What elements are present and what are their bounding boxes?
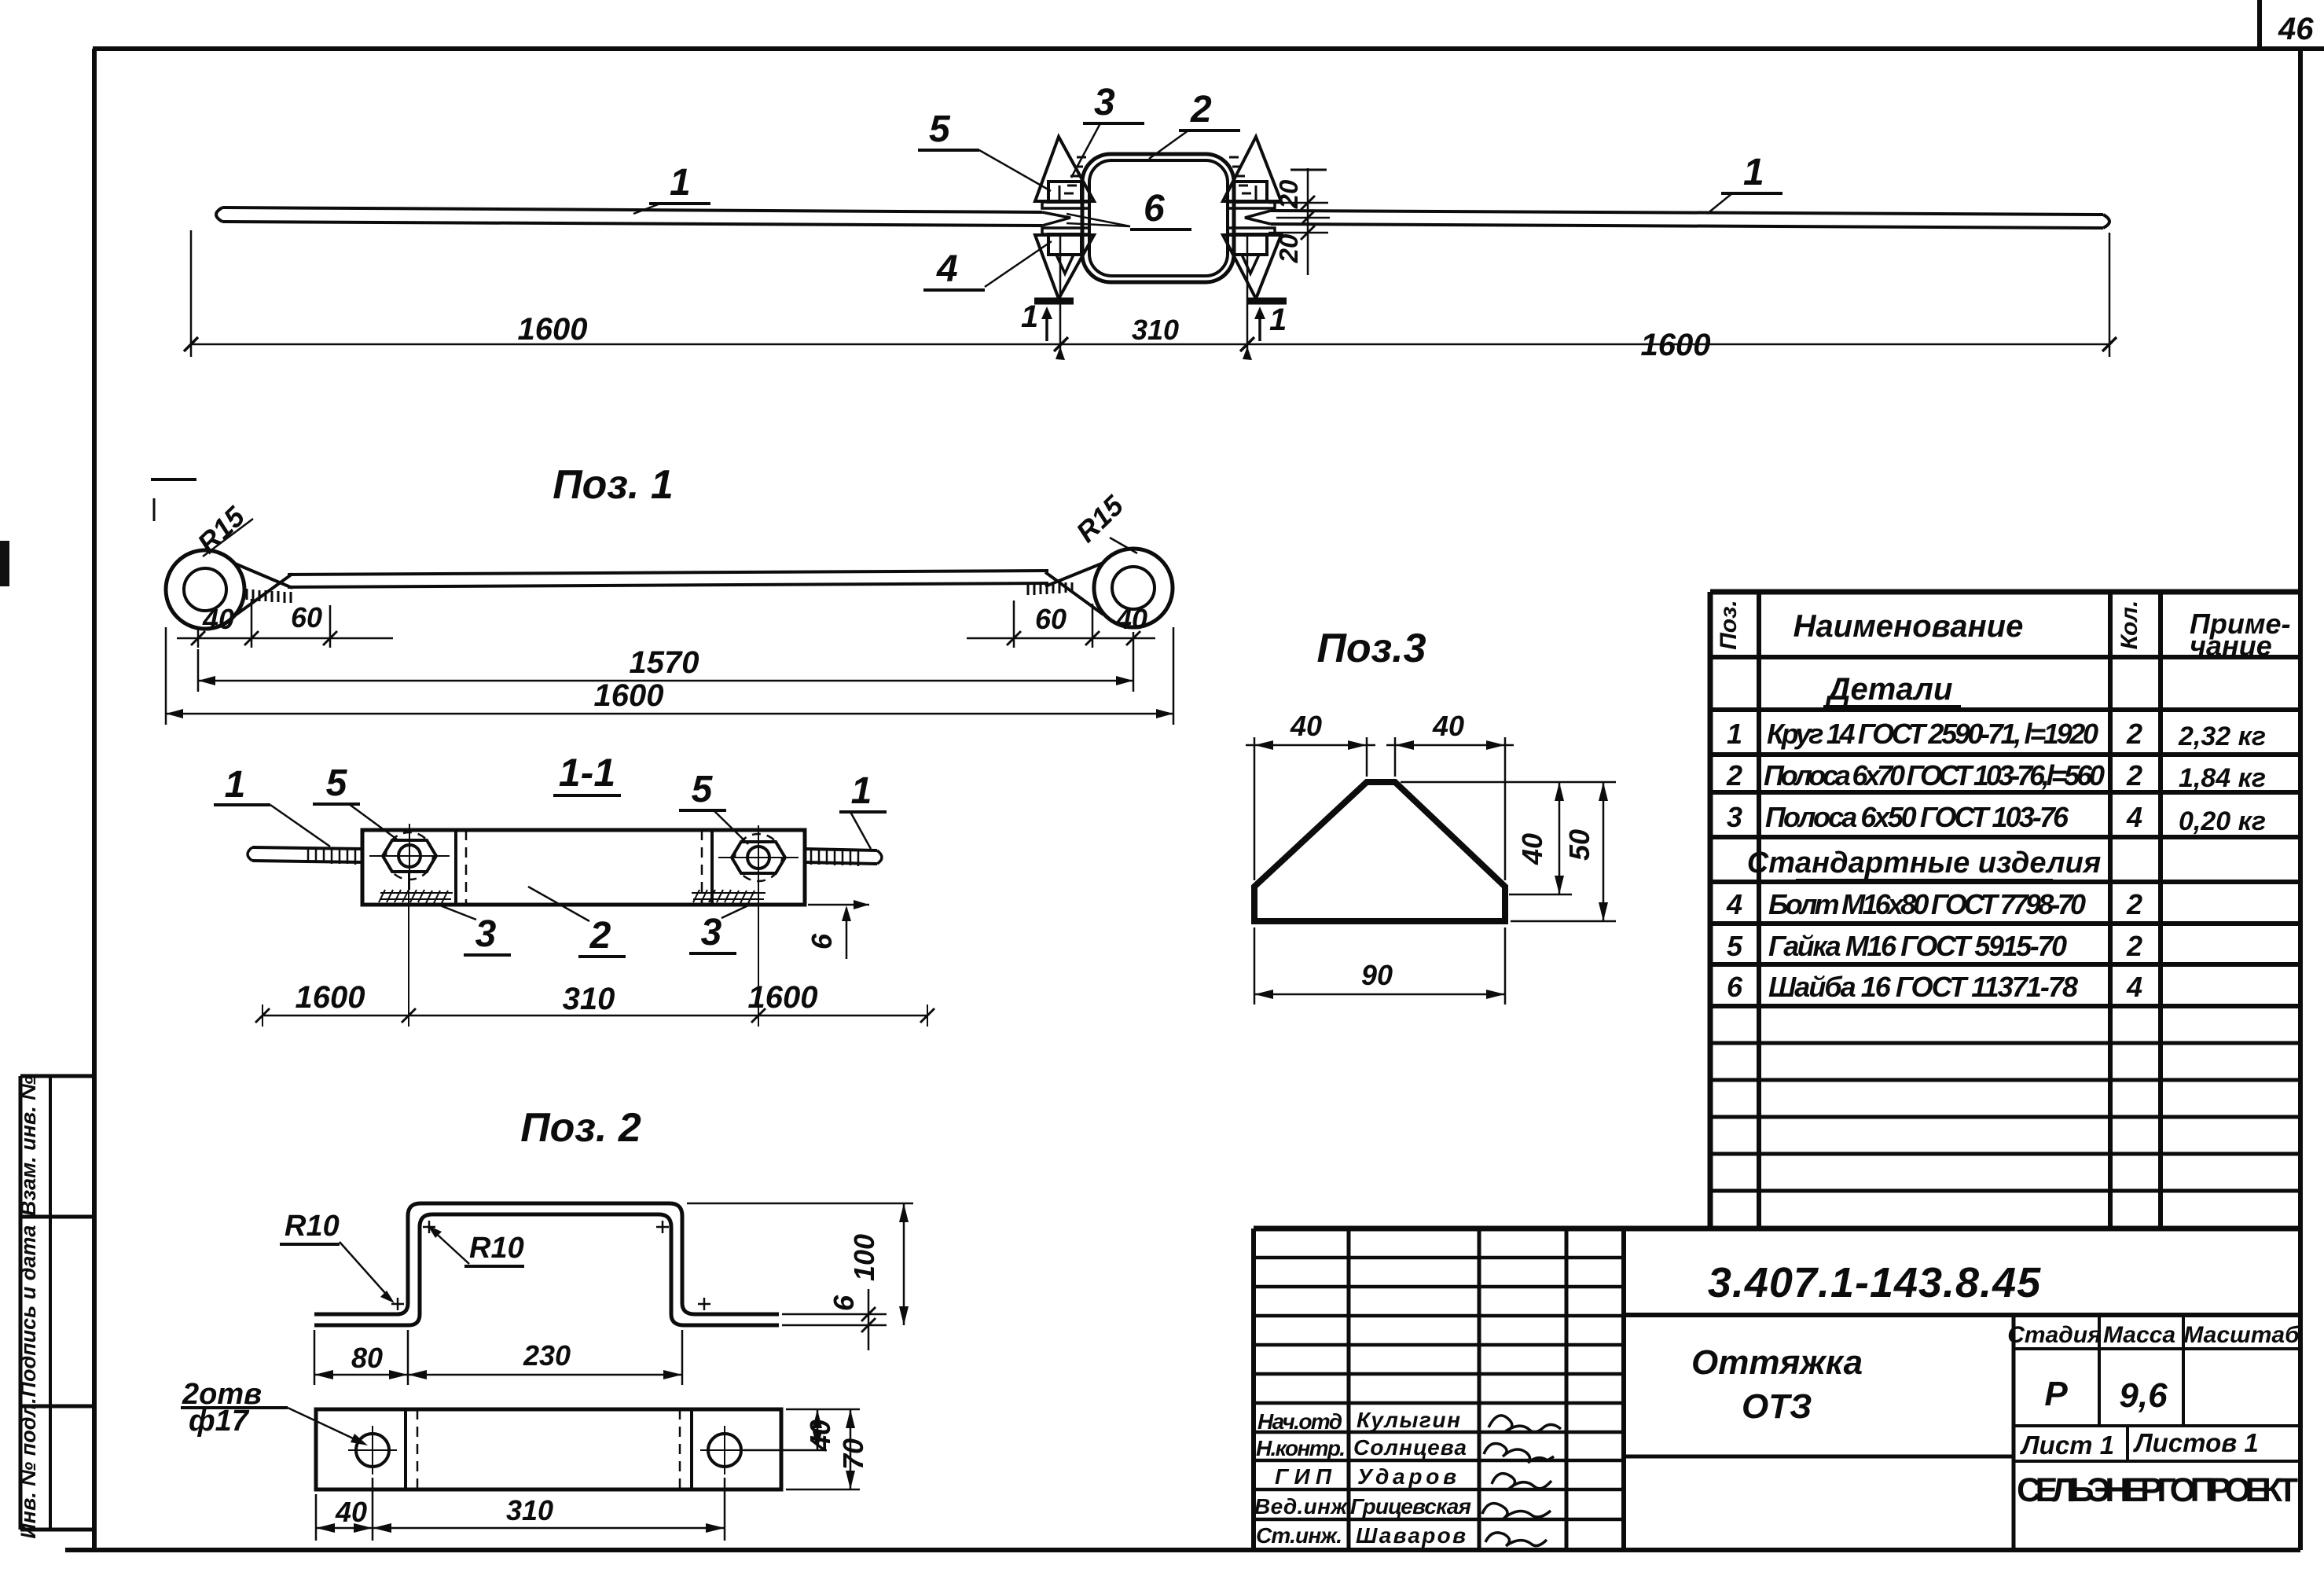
svg-text:2: 2 bbox=[1726, 759, 1742, 792]
svg-text:3: 3 bbox=[475, 913, 497, 955]
svg-text:Кол.: Кол. bbox=[2117, 601, 2142, 650]
svg-text:230: 230 bbox=[523, 1339, 571, 1372]
svg-text:100: 100 bbox=[848, 1234, 880, 1281]
svg-text:40: 40 bbox=[804, 1420, 836, 1452]
svg-text:Наименование: Наименование bbox=[1793, 609, 2024, 644]
svg-text:4: 4 bbox=[2126, 971, 2142, 1003]
svg-text:6: 6 bbox=[1727, 971, 1743, 1003]
svg-text:20: 20 bbox=[1274, 233, 1303, 263]
svg-text:20: 20 bbox=[1274, 179, 1303, 209]
svg-text:2: 2 bbox=[2126, 930, 2142, 962]
svg-text:40: 40 bbox=[1290, 710, 1322, 742]
svg-text:Н.контр.: Н.контр. bbox=[1256, 1436, 1346, 1460]
svg-text:1600: 1600 bbox=[1641, 328, 1711, 362]
svg-text:1: 1 bbox=[225, 764, 246, 806]
svg-text:Кулыгин: Кулыгин bbox=[1357, 1408, 1460, 1432]
svg-text:Поз.3: Поз.3 bbox=[1316, 626, 1426, 671]
svg-text:60: 60 bbox=[1035, 603, 1067, 635]
svg-text:3: 3 bbox=[1094, 82, 1115, 123]
svg-text:Вед.инж: Вед.инж bbox=[1254, 1494, 1348, 1519]
svg-text:Инв. № подл.: Инв. № подл. bbox=[17, 1398, 40, 1538]
svg-text:СЕЛЬЭНЕРГОПРОЕКТ: СЕЛЬЭНЕРГОПРОЕКТ bbox=[2017, 1471, 2298, 1509]
svg-text:310: 310 bbox=[506, 1494, 553, 1526]
svg-text:5: 5 bbox=[929, 108, 951, 150]
svg-text:40: 40 bbox=[1115, 603, 1147, 635]
svg-text:70: 70 bbox=[837, 1438, 869, 1470]
svg-text:1: 1 bbox=[851, 770, 872, 812]
svg-text:3.407.1-143.8.45: 3.407.1-143.8.45 bbox=[1708, 1259, 2041, 1306]
svg-text:40: 40 bbox=[202, 603, 234, 635]
svg-text:Масштаб: Масштаб bbox=[2183, 1322, 2300, 1348]
svg-text:40: 40 bbox=[1432, 710, 1464, 742]
svg-text:ОТЗ: ОТЗ bbox=[1742, 1387, 1812, 1426]
svg-text:1: 1 bbox=[1727, 718, 1742, 750]
svg-text:2: 2 bbox=[2126, 718, 2142, 750]
svg-text:0,20 кг: 0,20 кг bbox=[2179, 806, 2266, 836]
svg-text:Лист 1: Лист 1 bbox=[2020, 1431, 2114, 1460]
svg-text:Болт М16х80 ГОСТ 7798-70: Болт М16х80 ГОСТ 7798-70 bbox=[1768, 888, 2086, 920]
svg-text:4: 4 bbox=[1726, 888, 1742, 920]
svg-text:2,32 кг: 2,32 кг bbox=[2178, 722, 2266, 751]
svg-text:1600: 1600 bbox=[594, 678, 664, 713]
svg-text:Ст.инж.: Ст.инж. bbox=[1256, 1523, 1342, 1548]
svg-text:9,6: 9,6 bbox=[2119, 1376, 2168, 1415]
svg-text:Полоса 6х50 ГОСТ 103-76: Полоса 6х50 ГОСТ 103-76 bbox=[1765, 801, 2069, 833]
svg-text:R10: R10 bbox=[285, 1210, 340, 1243]
svg-text:1: 1 bbox=[1743, 152, 1764, 193]
svg-text:Шаваров: Шаваров bbox=[1356, 1523, 1466, 1548]
svg-text:2: 2 bbox=[1190, 89, 1212, 130]
svg-text:Поз. 1: Поз. 1 bbox=[553, 462, 674, 508]
svg-text:1570: 1570 bbox=[630, 645, 699, 680]
svg-text:2: 2 bbox=[2126, 759, 2142, 792]
svg-text:6: 6 bbox=[828, 1295, 860, 1311]
svg-text:40: 40 bbox=[1516, 833, 1548, 865]
svg-text:ф17: ф17 bbox=[189, 1405, 250, 1438]
svg-text:Шайба 16 ГОСТ 11371-78: Шайба 16 ГОСТ 11371-78 bbox=[1768, 971, 2078, 1003]
svg-text:Взам. инв. №: Взам. инв. № bbox=[17, 1076, 40, 1216]
svg-text:Стадия: Стадия bbox=[2007, 1322, 2102, 1348]
svg-text:4: 4 bbox=[936, 248, 958, 290]
svg-text:ГИП: ГИП bbox=[1275, 1464, 1332, 1489]
svg-text:46: 46 bbox=[2278, 12, 2314, 46]
svg-text:3: 3 bbox=[1727, 801, 1742, 833]
svg-text:Полоса 6х70 ГОСТ 103-76,l=560: Полоса 6х70 ГОСТ 103-76,l=560 bbox=[1764, 759, 2105, 792]
svg-text:Поз. 2: Поз. 2 bbox=[520, 1105, 641, 1151]
svg-text:Грицевская: Грицевская bbox=[1350, 1494, 1471, 1519]
svg-text:1,84 кг: 1,84 кг bbox=[2179, 763, 2266, 793]
svg-text:60: 60 bbox=[291, 601, 322, 634]
svg-text:Солнцева: Солнцева bbox=[1353, 1435, 1467, 1460]
svg-text:2: 2 bbox=[2126, 888, 2142, 920]
svg-text:Р: Р bbox=[2044, 1375, 2068, 1413]
svg-text:2: 2 bbox=[589, 915, 611, 957]
svg-text:310: 310 bbox=[1132, 314, 1179, 346]
svg-text:50: 50 bbox=[1563, 829, 1595, 861]
svg-text:Гайка М16 ГОСТ 5915-70: Гайка М16 ГОСТ 5915-70 bbox=[1768, 930, 2067, 962]
svg-text:1600: 1600 bbox=[748, 980, 818, 1015]
svg-text:Оттяжка: Оттяжка bbox=[1691, 1343, 1863, 1382]
svg-text:310: 310 bbox=[563, 982, 615, 1016]
svg-text:40: 40 bbox=[335, 1496, 367, 1528]
svg-text:Масса: Масса bbox=[2103, 1322, 2175, 1348]
svg-text:4: 4 bbox=[2126, 801, 2142, 833]
svg-text:Круг 14 ГОСТ 2590-71, l=1920: Круг 14 ГОСТ 2590-71, l=1920 bbox=[1767, 718, 2098, 750]
svg-text:1: 1 bbox=[1269, 303, 1287, 337]
svg-text:6: 6 bbox=[806, 933, 838, 949]
svg-text:Нач.отд: Нач.отд bbox=[1257, 1409, 1342, 1434]
svg-text:80: 80 bbox=[351, 1342, 383, 1374]
svg-text:R10: R10 bbox=[469, 1232, 524, 1265]
svg-text:Поз.: Поз. bbox=[1716, 600, 1742, 650]
svg-text:чание: чание bbox=[2190, 630, 2272, 662]
svg-text:1: 1 bbox=[670, 162, 691, 204]
svg-text:3: 3 bbox=[701, 912, 722, 953]
svg-text:Детали: Детали bbox=[1826, 672, 1953, 707]
svg-text:1600: 1600 bbox=[518, 312, 588, 347]
svg-text:5: 5 bbox=[326, 762, 348, 804]
svg-text:1-1: 1-1 bbox=[559, 751, 615, 795]
svg-text:1600: 1600 bbox=[296, 980, 365, 1015]
svg-text:Листов 1: Листов 1 bbox=[2133, 1428, 2259, 1457]
svg-text:5: 5 bbox=[1727, 930, 1743, 962]
svg-text:1: 1 bbox=[1021, 299, 1038, 334]
svg-text:90: 90 bbox=[1361, 959, 1393, 991]
svg-text:Подпись и дата: Подпись и дата bbox=[17, 1225, 40, 1398]
svg-text:Стандартные изделия: Стандартные изделия bbox=[1747, 847, 2101, 880]
svg-text:6: 6 bbox=[1144, 188, 1165, 230]
svg-text:5: 5 bbox=[692, 769, 714, 810]
